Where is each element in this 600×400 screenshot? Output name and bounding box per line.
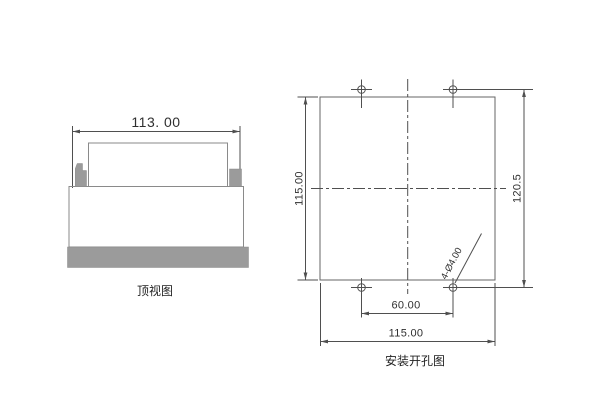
dimension-value-cutout-height: 115.00 (294, 171, 306, 206)
mounting-hole-top-left (351, 80, 372, 109)
dimension-value-hole-spacing: 60.00 (391, 300, 420, 312)
arrowhead-right (446, 312, 454, 316)
mounting-hole-bottom-left (351, 278, 372, 318)
arrowhead-down (304, 273, 308, 281)
top-view-caption: 顶视图 (137, 283, 173, 298)
mounting-hole-top-right (443, 80, 533, 109)
hole-diameter-label: 4-Ø4.00 (439, 246, 465, 281)
top-view-diagram: 113. 00 顶视图 (68, 114, 249, 298)
dimension-value-width: 113. 00 (131, 114, 180, 130)
hole-diameter-leader: 4-Ø4.00 (439, 234, 482, 284)
dimension-value-cutout-width: 115.00 (389, 328, 424, 340)
arrowhead-left (73, 130, 81, 134)
arrowhead-left (362, 312, 370, 316)
right-mounting-clip (230, 169, 242, 187)
arrowhead-right (488, 340, 496, 344)
device-body-rect (69, 187, 244, 248)
display-window-rect (89, 143, 228, 187)
hole-span-vertical-dimension: 120.5 (512, 90, 526, 288)
arrowhead-up (304, 97, 308, 105)
top-view-width-dimension: 113. 00 (73, 114, 241, 188)
arrowhead-down (522, 280, 526, 288)
technical-drawing-page: 113. 00 顶视图 (0, 0, 600, 400)
drawing-canvas: 113. 00 顶视图 (0, 0, 600, 400)
cutout-caption: 安装开孔图 (385, 353, 445, 368)
arrowhead-up (522, 90, 526, 98)
arrowhead-left (321, 340, 329, 344)
cutout-diagram: 115.00 120.5 60.00 115.00 4- (294, 79, 534, 368)
arrowhead-right (233, 130, 241, 134)
mounting-hole-bottom-right (443, 278, 533, 318)
dimension-value-hole-vertical-span: 120.5 (512, 174, 524, 203)
left-mounting-clip (75, 164, 86, 187)
front-bezel-bar (68, 247, 249, 268)
hole-spacing-dimension: 60.00 (362, 300, 454, 316)
